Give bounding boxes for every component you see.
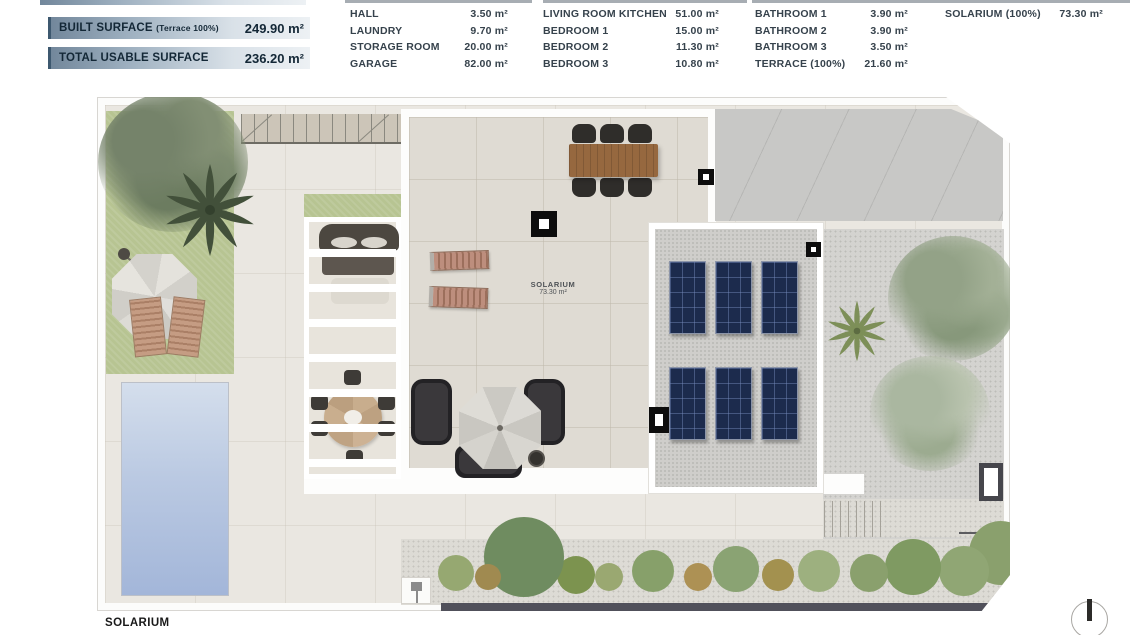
legend-column-2: LIVING ROOM KITCHEN51.00 m² BEDROOM 115.… — [543, 6, 719, 72]
utility-box — [401, 577, 431, 604]
cropped-column-rule — [752, 0, 951, 3]
pale-tree — [870, 356, 990, 471]
built-surface-bar: BUILT SURFACE (Terrace 100%) 249.90 m² — [48, 17, 310, 39]
floorplan-page: BUILT SURFACE (Terrace 100%) 249.90 m² T… — [0, 0, 1130, 635]
site-plan: SOLARIUM 73.30 m² — [97, 97, 1010, 611]
swimming-pool — [121, 382, 229, 596]
built-surface-label: BUILT SURFACE (Terrace 100%) — [59, 22, 219, 34]
room-row: TERRACE (100%)21.60 m² — [755, 56, 908, 73]
solar-panel — [761, 261, 798, 334]
cropped-column-rule — [345, 0, 532, 3]
chair — [628, 178, 652, 197]
skylight-marker — [531, 211, 557, 237]
compass-needle — [1087, 599, 1092, 621]
total-usable-label: TOTAL USABLE SURFACE — [59, 52, 209, 64]
chair — [572, 124, 596, 143]
roof-slab — [715, 109, 1003, 221]
planting-bed — [401, 539, 1001, 605]
legend-column-3: BATHROOM 13.90 m² BATHROOM 23.90 m² BATH… — [755, 6, 908, 72]
total-usable-value: 236.20 m² — [245, 51, 304, 66]
palm-tree-icon — [160, 160, 260, 260]
plan-caption: SOLARIUM — [105, 617, 170, 629]
built-surface-value: 249.90 m² — [245, 21, 304, 36]
pergola-lawn-strip — [304, 194, 401, 218]
dining-table — [569, 144, 658, 177]
lounge-sofa — [411, 379, 452, 445]
umbrella-hub — [497, 425, 503, 431]
chair — [600, 124, 624, 143]
pergola — [304, 217, 401, 479]
room-row: BEDROOM 211.30 m² — [543, 39, 719, 56]
cropped-column-rule — [943, 0, 1130, 3]
room-label: SOLARIUM 73.30 m² — [498, 280, 608, 298]
solar-panel — [669, 261, 706, 334]
room-row: LAUNDRY9.70 m² — [350, 23, 508, 40]
solar-panel — [761, 367, 798, 440]
chair — [600, 178, 624, 197]
room-row: SOLARIUM (100%)73.30 m² — [945, 6, 1103, 23]
palm-tree-icon — [824, 298, 890, 364]
chair — [572, 178, 596, 197]
room-row: BATHROOM 33.50 m² — [755, 39, 908, 56]
room-row: BEDROOM 310.80 m² — [543, 56, 719, 73]
skylight-marker — [649, 407, 669, 433]
room-row: BATHROOM 13.90 m² — [755, 6, 908, 23]
room-row: BATHROOM 23.90 m² — [755, 23, 908, 40]
cropped-column-rule — [543, 0, 747, 3]
solar-panel — [715, 261, 752, 334]
deck-lounger — [129, 296, 167, 357]
legend-column-1: HALL3.50 m² LAUNDRY9.70 m² STORAGE ROOM2… — [350, 6, 508, 72]
room-row: STORAGE ROOM20.00 m² — [350, 39, 508, 56]
skylight-marker — [806, 242, 821, 257]
sage-tree — [888, 236, 1018, 361]
cropped-header-bar — [40, 0, 306, 5]
pergola-slats — [309, 222, 396, 474]
solar-panel — [715, 367, 752, 440]
room-row: HALL3.50 m² — [350, 6, 508, 23]
chair — [628, 124, 652, 143]
solar-panel — [669, 367, 706, 440]
room-row: GARAGE82.00 m² — [350, 56, 508, 73]
room-row: LIVING ROOM KITCHEN51.00 m² — [543, 6, 719, 23]
skylight-marker — [698, 169, 714, 185]
sun-lounger — [430, 250, 490, 271]
hedge-row — [438, 555, 474, 591]
pillar-marker — [979, 463, 1003, 501]
handrail — [959, 532, 997, 534]
boundary-wall — [441, 603, 998, 611]
total-usable-surface-bar: TOTAL USABLE SURFACE 236.20 m² — [48, 47, 310, 69]
room-row: BEDROOM 115.00 m² — [543, 23, 719, 40]
staircase-top — [241, 114, 401, 144]
parasol-base — [118, 248, 130, 260]
staircase-right — [824, 501, 882, 537]
umbrella-base — [528, 450, 545, 467]
legend-column-4: SOLARIUM (100%)73.30 m² — [945, 6, 1103, 23]
sun-lounger — [429, 286, 489, 309]
solar-panel-area — [649, 223, 823, 493]
